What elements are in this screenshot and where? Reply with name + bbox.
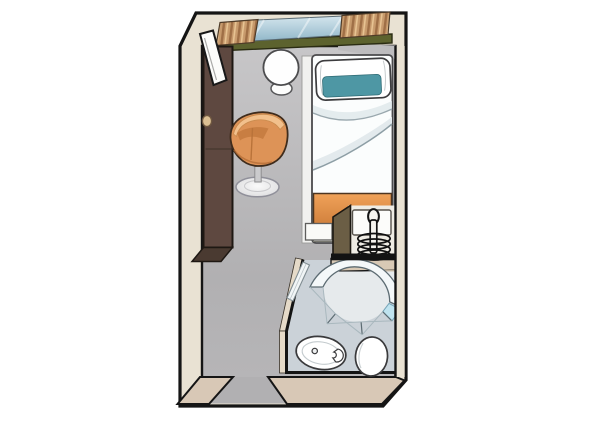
basin-drain [312,348,318,354]
table-top [263,50,298,85]
pillow [315,58,391,101]
cabin-floorplan [0,0,600,422]
bathroom [280,258,402,377]
pillow-teal-band [322,74,381,97]
wardrobe-knob [202,115,211,126]
curtain-left [216,20,258,46]
right-wall-band [397,46,405,377]
rod-shaft [370,220,377,253]
curtain-right [340,12,390,38]
radiator-base-bar [331,254,399,261]
floorplan-image [0,0,600,422]
bottom-wall-right [268,377,405,404]
bed-corner-step [306,224,333,241]
radiator-unit [331,206,399,261]
bottom-wall-face [178,377,405,404]
